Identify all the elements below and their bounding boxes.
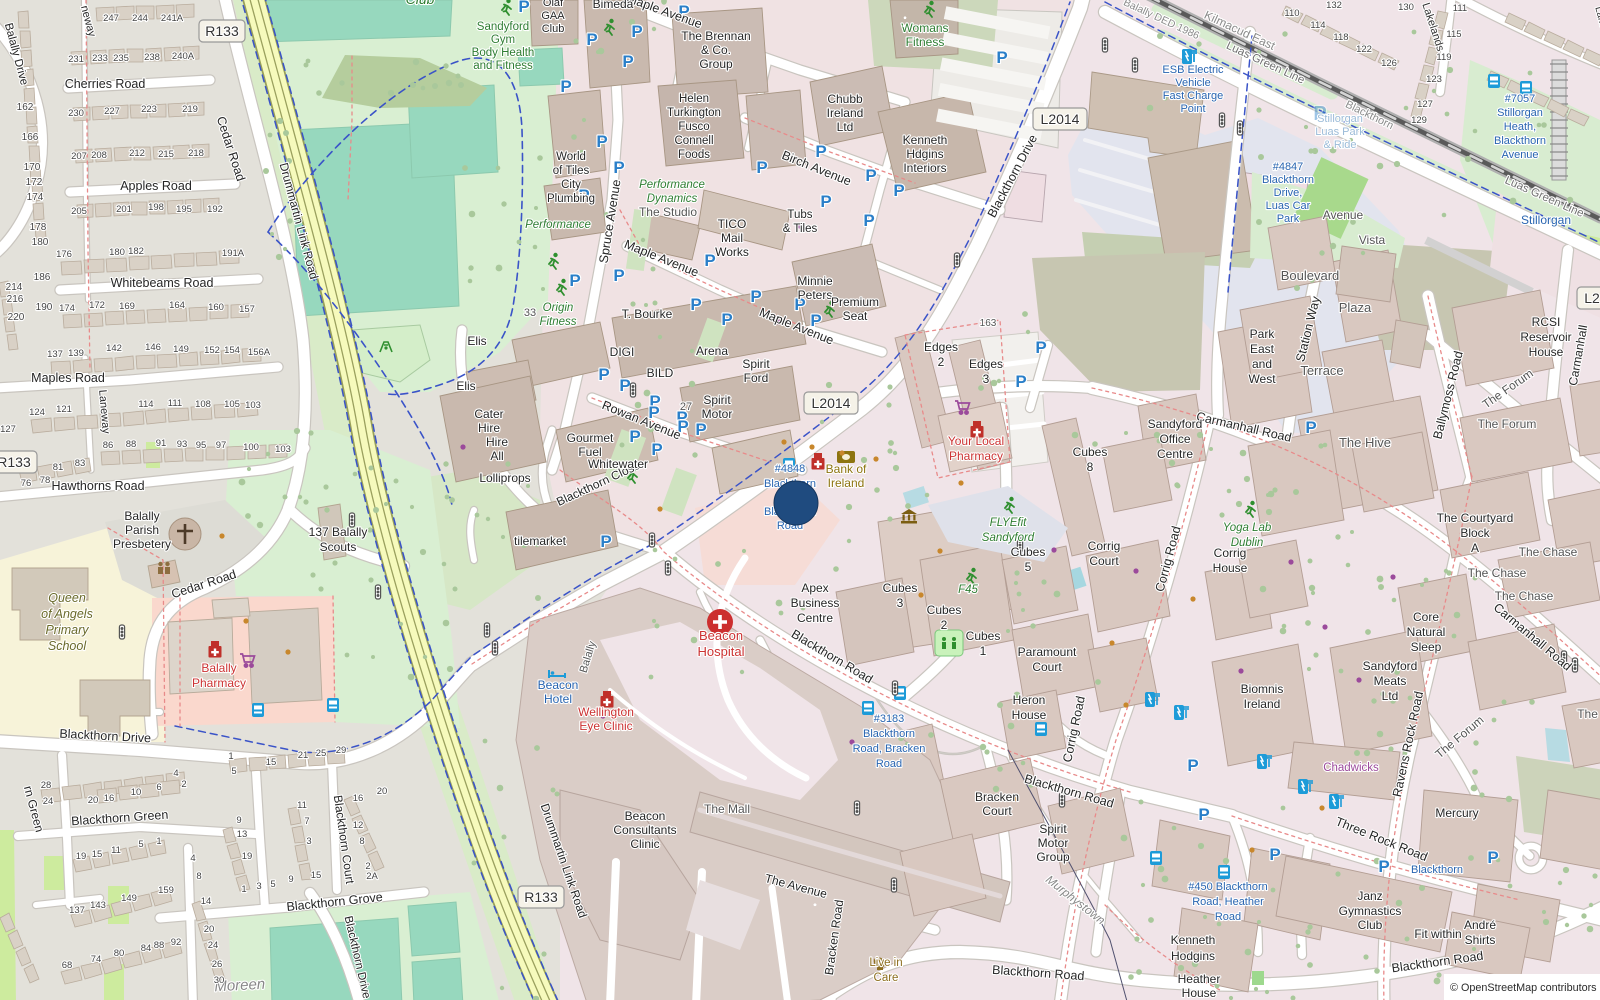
svg-text:Edges: Edges — [924, 340, 958, 354]
svg-text:208: 208 — [91, 150, 107, 161]
svg-text:GAA: GAA — [541, 10, 565, 22]
svg-text:Heath,: Heath, — [1504, 121, 1536, 133]
svg-text:8: 8 — [359, 836, 364, 847]
svg-text:19: 19 — [242, 851, 253, 862]
svg-text:233: 233 — [92, 53, 108, 64]
svg-text:DIGI: DIGI — [610, 345, 635, 359]
svg-text:5: 5 — [270, 879, 275, 890]
svg-text:21: 21 — [298, 750, 309, 761]
svg-text:Cubes: Cubes — [883, 581, 918, 595]
svg-text:166: 166 — [22, 132, 39, 143]
svg-text:P: P — [756, 158, 767, 177]
svg-text:P: P — [596, 132, 607, 151]
svg-text:Dublin: Dublin — [1231, 537, 1264, 549]
svg-text:162: 162 — [17, 102, 34, 113]
svg-text:Ireland: Ireland — [1244, 697, 1281, 711]
svg-text:Tubs: Tubs — [787, 209, 812, 221]
svg-text:11: 11 — [111, 845, 121, 856]
svg-text:5: 5 — [138, 839, 143, 850]
svg-text:223: 223 — [141, 104, 157, 115]
svg-text:Road: Road — [876, 758, 902, 770]
svg-text:BILD: BILD — [647, 366, 674, 380]
svg-text:137: 137 — [47, 349, 63, 360]
svg-text:115: 115 — [1446, 29, 1461, 40]
svg-text:Group: Group — [1036, 850, 1070, 864]
svg-text:Heron: Heron — [1013, 693, 1046, 707]
svg-text:174: 174 — [59, 303, 75, 314]
svg-text:2A: 2A — [366, 871, 378, 882]
svg-text:142: 142 — [106, 343, 122, 354]
svg-text:Kenneth: Kenneth — [1171, 933, 1216, 947]
svg-text:Edges: Edges — [969, 357, 1003, 371]
svg-text:114: 114 — [1310, 20, 1325, 31]
svg-text:Wellington: Wellington — [578, 705, 634, 719]
svg-text:12: 12 — [353, 820, 364, 831]
svg-text:House: House — [1182, 986, 1217, 1000]
svg-text:P: P — [631, 22, 642, 41]
svg-text:P: P — [695, 420, 706, 439]
svg-text:Primary: Primary — [45, 623, 89, 637]
svg-text:Hodgins: Hodgins — [1171, 949, 1215, 963]
svg-text:School: School — [48, 639, 87, 653]
svg-text:Live in: Live in — [869, 957, 902, 969]
svg-text:Reservoir: Reservoir — [1520, 330, 1571, 344]
svg-text:Cubes: Cubes — [927, 603, 962, 617]
svg-text:156A: 156A — [248, 347, 271, 358]
svg-text:6: 6 — [156, 782, 161, 793]
svg-text:P: P — [1269, 845, 1280, 864]
svg-text:Club: Club — [1358, 918, 1383, 932]
svg-text:8: 8 — [196, 871, 201, 882]
svg-text:P: P — [629, 427, 640, 446]
svg-text:24: 24 — [43, 796, 54, 807]
svg-text:P: P — [865, 166, 876, 185]
svg-text:& Tiles: & Tiles — [783, 223, 818, 235]
svg-text:160: 160 — [208, 302, 224, 313]
svg-text:P: P — [704, 251, 715, 270]
svg-text:9: 9 — [288, 874, 293, 885]
svg-text:1: 1 — [156, 836, 161, 847]
svg-text:House: House — [1213, 561, 1248, 575]
svg-text:123: 123 — [1426, 74, 1442, 85]
svg-text:Apex: Apex — [801, 581, 828, 595]
svg-text:132: 132 — [1326, 0, 1342, 11]
svg-text:27: 27 — [680, 401, 692, 413]
svg-text:130: 130 — [1398, 2, 1414, 13]
svg-text:Fast Charge: Fast Charge — [1163, 90, 1224, 102]
svg-text:All: All — [490, 449, 503, 463]
svg-text:Sandyford: Sandyford — [982, 532, 1035, 544]
svg-text:24: 24 — [208, 940, 219, 951]
svg-text:Cubes: Cubes — [1073, 445, 1108, 459]
svg-text:Performance: Performance — [639, 179, 705, 191]
svg-text:& Co.: & Co. — [701, 43, 731, 57]
svg-text:2: 2 — [938, 355, 945, 369]
svg-text:Janz: Janz — [1357, 889, 1382, 903]
svg-text:244: 244 — [132, 13, 148, 24]
svg-text:129: 129 — [1411, 115, 1427, 126]
svg-text:Hospital: Hospital — [698, 644, 745, 659]
svg-text:3: 3 — [983, 372, 990, 386]
svg-text:The Wa: The Wa — [1577, 707, 1600, 721]
svg-text:26: 26 — [212, 959, 223, 970]
svg-text:World: World — [556, 151, 586, 163]
svg-text:Blackthorn: Blackthorn — [1262, 174, 1314, 186]
svg-text:121: 121 — [56, 404, 72, 415]
svg-text:174: 174 — [27, 192, 44, 203]
svg-text:Care: Care — [874, 972, 899, 984]
svg-text:Lolliprops: Lolliprops — [479, 471, 530, 485]
svg-text:The Studio: The Studio — [639, 205, 697, 219]
svg-text:Boulevard: Boulevard — [1281, 268, 1340, 283]
svg-text:L2014: L2014 — [812, 395, 851, 411]
svg-text:146: 146 — [145, 342, 161, 353]
svg-text:R133: R133 — [205, 23, 239, 39]
svg-text:172: 172 — [26, 177, 43, 188]
svg-text:Bank of: Bank of — [826, 462, 867, 476]
svg-text:Stillorgan: Stillorgan — [1521, 213, 1571, 227]
svg-text:25: 25 — [316, 748, 327, 759]
svg-text:Foods: Foods — [678, 149, 710, 161]
svg-text:143: 143 — [90, 900, 106, 911]
svg-text:Womans: Womans — [901, 21, 948, 35]
svg-text:192: 192 — [207, 204, 223, 215]
svg-text:#4848: #4848 — [775, 463, 806, 475]
svg-text:111: 111 — [168, 398, 182, 409]
svg-text:74: 74 — [91, 954, 102, 965]
svg-text:15: 15 — [311, 870, 322, 881]
svg-text:137: 137 — [69, 905, 85, 916]
svg-text:Avenue: Avenue — [1501, 149, 1538, 161]
svg-text:1: 1 — [241, 884, 246, 895]
svg-text:19: 19 — [76, 851, 87, 862]
svg-text:127: 127 — [1417, 99, 1433, 110]
svg-text:Stillorgan: Stillorgan — [1497, 107, 1543, 119]
svg-text:139: 139 — [68, 348, 84, 359]
svg-text:3: 3 — [256, 881, 261, 892]
svg-text:Core: Core — [1413, 610, 1439, 624]
svg-text:#450 Blackthorn: #450 Blackthorn — [1188, 881, 1268, 893]
svg-text:Origin: Origin — [543, 302, 574, 314]
svg-text:4: 4 — [190, 853, 195, 864]
svg-text:Ireland: Ireland — [827, 106, 864, 120]
svg-text:T. Bourke: T. Bourke — [622, 307, 673, 321]
svg-text:Hire: Hire — [478, 421, 500, 435]
svg-text:Beacon: Beacon — [699, 628, 743, 643]
svg-text:#7057: #7057 — [1505, 93, 1536, 105]
svg-text:House: House — [1529, 345, 1564, 359]
svg-text:Road, Bracken: Road, Bracken — [853, 743, 926, 755]
svg-text:P: P — [1187, 756, 1198, 775]
svg-text:103: 103 — [275, 444, 291, 455]
svg-text:and Fitness: and Fitness — [473, 60, 533, 72]
svg-text:Consultants: Consultants — [613, 823, 676, 837]
svg-text:198: 198 — [148, 202, 164, 213]
svg-text:Road: Road — [1215, 911, 1241, 923]
svg-text:Performance: Performance — [525, 219, 591, 231]
svg-text:P: P — [1198, 805, 1209, 824]
svg-text:Bimeda: Bimeda — [593, 0, 634, 11]
svg-text:Plumbing: Plumbing — [547, 193, 595, 205]
svg-text:Presbetery: Presbetery — [113, 537, 171, 551]
svg-text:Maples Road: Maples Road — [31, 371, 105, 385]
svg-text:190: 190 — [36, 302, 53, 313]
svg-text:P: P — [1305, 418, 1316, 437]
svg-text:Fit within: Fit within — [1414, 927, 1461, 941]
svg-text:R133: R133 — [524, 889, 558, 905]
svg-text:Cater: Cater — [474, 407, 503, 421]
svg-text:127: 127 — [0, 424, 16, 435]
svg-text:Spirit: Spirit — [1039, 822, 1067, 836]
svg-text:P: P — [750, 287, 761, 306]
svg-text:28: 28 — [41, 780, 52, 791]
svg-text:Parish: Parish — [125, 523, 159, 537]
svg-text:Seat: Seat — [843, 309, 868, 323]
svg-text:Mail: Mail — [721, 231, 743, 245]
svg-text:© OpenStreetMap contributors: © OpenStreetMap contributors — [1450, 982, 1597, 994]
svg-text:118: 118 — [1333, 32, 1348, 43]
svg-text:110: 110 — [1284, 8, 1299, 19]
svg-text:Chubb: Chubb — [827, 92, 863, 106]
svg-text:City: City — [561, 179, 581, 191]
svg-text:Park: Park — [1250, 327, 1276, 341]
svg-text:P: P — [598, 365, 609, 384]
svg-text:Centre: Centre — [1157, 447, 1193, 461]
svg-text:P: P — [893, 181, 904, 200]
svg-text:16: 16 — [104, 793, 115, 804]
svg-text:P: P — [1035, 338, 1046, 357]
svg-text:15: 15 — [266, 757, 277, 768]
svg-text:Ford: Ford — [744, 371, 769, 385]
svg-text:Cherries Road: Cherries Road — [65, 77, 146, 91]
svg-text:7: 7 — [304, 816, 309, 827]
svg-text:Fitness: Fitness — [906, 35, 945, 49]
svg-text:8: 8 — [1087, 460, 1094, 474]
svg-text:Spirit: Spirit — [742, 357, 770, 371]
svg-text:P: P — [996, 48, 1007, 67]
svg-text:Clinic: Clinic — [630, 837, 659, 851]
svg-text:231: 231 — [68, 54, 84, 65]
svg-text:Motor: Motor — [702, 407, 733, 421]
svg-text:Blackthorn: Blackthorn — [863, 728, 915, 740]
svg-text:Sleep: Sleep — [1411, 640, 1442, 654]
svg-text:Chadwicks: Chadwicks — [1323, 762, 1379, 774]
svg-text:Apples Road: Apples Road — [120, 179, 192, 193]
svg-text:108: 108 — [195, 399, 211, 410]
svg-text:& Ride: & Ride — [1323, 139, 1356, 151]
svg-text:220: 220 — [8, 312, 25, 323]
svg-text:Biomnis: Biomnis — [1241, 682, 1284, 696]
svg-text:L2014: L2014 — [1041, 111, 1080, 127]
svg-text:216: 216 — [7, 294, 24, 305]
svg-text:Club: Club — [542, 23, 565, 35]
svg-text:205: 205 — [71, 206, 87, 217]
svg-text:78: 78 — [40, 475, 51, 486]
svg-text:Group: Group — [699, 57, 733, 71]
svg-text:Interiors: Interiors — [903, 161, 946, 175]
svg-text:ESB Electric: ESB Electric — [1162, 64, 1224, 76]
svg-text:Turkington: Turkington — [667, 107, 721, 119]
svg-text:16: 16 — [353, 793, 364, 804]
svg-text:Paramount: Paramount — [1018, 645, 1077, 659]
svg-text:Drive,: Drive, — [1274, 187, 1303, 199]
svg-text:149: 149 — [121, 893, 137, 904]
svg-text:Balally: Balally — [201, 661, 236, 675]
svg-text:Gourmet: Gourmet — [567, 431, 614, 445]
svg-text:Olaf: Olaf — [543, 0, 564, 9]
svg-text:Balally: Balally — [124, 509, 159, 523]
svg-text:TICO: TICO — [718, 217, 747, 231]
svg-text:Hdgins: Hdgins — [906, 147, 943, 161]
svg-text:9: 9 — [236, 815, 241, 826]
svg-text:152: 152 — [204, 345, 220, 356]
svg-text:86: 86 — [103, 440, 114, 451]
svg-text:97: 97 — [216, 440, 227, 451]
svg-text:Yoga Lab: Yoga Lab — [1223, 522, 1272, 534]
svg-text:The Chase: The Chase — [1495, 589, 1554, 603]
svg-text:163: 163 — [980, 318, 997, 329]
svg-text:154: 154 — [224, 345, 240, 356]
svg-text:95: 95 — [196, 440, 207, 451]
svg-text:Eye Clinic: Eye Clinic — [579, 719, 632, 733]
svg-text:124: 124 — [29, 407, 45, 418]
svg-text:Mercury: Mercury — [1435, 806, 1478, 820]
svg-text:Arena: Arena — [696, 344, 728, 358]
svg-text:P: P — [560, 77, 571, 96]
svg-text:13: 13 — [237, 829, 248, 840]
svg-text:P: P — [863, 211, 874, 230]
svg-text:241A: 241A — [161, 13, 184, 24]
svg-text:The Brennan: The Brennan — [681, 29, 750, 43]
svg-text:Elis: Elis — [456, 379, 475, 393]
svg-text:30: 30 — [214, 975, 225, 986]
svg-text:169: 169 — [119, 301, 135, 312]
svg-text:119: 119 — [1436, 52, 1451, 63]
svg-text:Court: Court — [1089, 554, 1119, 568]
svg-text:240A: 240A — [172, 51, 195, 62]
svg-text:Cubes: Cubes — [1011, 545, 1046, 559]
svg-text:91: 91 — [156, 438, 167, 449]
svg-text:5: 5 — [1025, 560, 1032, 574]
svg-text:2: 2 — [941, 618, 948, 632]
svg-text:81: 81 — [53, 462, 64, 473]
svg-text:159: 159 — [158, 885, 174, 896]
svg-text:Beacon: Beacon — [538, 678, 579, 692]
svg-text:Motor: Motor — [1038, 836, 1069, 850]
svg-text:11: 11 — [297, 800, 307, 811]
svg-text:The Forum: The Forum — [1478, 417, 1537, 431]
svg-text:195: 195 — [176, 204, 192, 215]
svg-text:Avenue: Avenue — [1323, 208, 1364, 222]
svg-text:33: 33 — [524, 307, 536, 319]
svg-text:157: 157 — [239, 304, 255, 315]
svg-text:20: 20 — [88, 795, 99, 806]
svg-text:191A: 191A — [222, 248, 245, 259]
svg-text:178: 178 — [30, 222, 47, 233]
svg-text:Spirit: Spirit — [703, 393, 731, 407]
svg-text:Bracken: Bracken — [975, 790, 1019, 804]
svg-text:RCSI: RCSI — [1532, 315, 1561, 329]
svg-text:218: 218 — [188, 148, 204, 159]
svg-text:4: 4 — [173, 768, 178, 779]
svg-text:212: 212 — [129, 148, 145, 159]
svg-text:Club: Club — [406, 0, 435, 7]
svg-text:88: 88 — [154, 940, 165, 951]
svg-text:Blackthorn: Blackthorn — [1494, 135, 1546, 147]
svg-text:111: 111 — [1453, 3, 1467, 14]
svg-text:Ireland: Ireland — [828, 476, 865, 490]
svg-text:P: P — [1487, 848, 1498, 867]
svg-text:Heather: Heather — [1178, 972, 1221, 986]
svg-text:Centre: Centre — [797, 611, 833, 625]
svg-text:Hotel: Hotel — [544, 692, 572, 706]
svg-text:Scouts: Scouts — [320, 540, 357, 554]
svg-text:#3183: #3183 — [874, 713, 905, 725]
svg-text:P: P — [815, 142, 826, 161]
svg-text:Body Health: Body Health — [472, 47, 535, 59]
svg-text:Sandyford: Sandyford — [1148, 417, 1203, 431]
svg-text:#4847: #4847 — [1273, 161, 1304, 173]
svg-text:P: P — [622, 52, 633, 71]
svg-text:114: 114 — [138, 399, 153, 410]
svg-text:Sandyford: Sandyford — [477, 21, 529, 33]
svg-text:180: 180 — [32, 237, 49, 248]
svg-text:88: 88 — [126, 439, 137, 450]
svg-text:Plaza: Plaza — [1339, 300, 1372, 315]
svg-text:29: 29 — [336, 745, 347, 756]
svg-text:and: and — [1252, 357, 1272, 371]
svg-text:Ltd: Ltd — [1382, 689, 1399, 703]
svg-text:P: P — [613, 266, 624, 285]
svg-text:186: 186 — [34, 272, 51, 283]
svg-text:84: 84 — [141, 943, 152, 954]
svg-text:Sandyford: Sandyford — [1363, 659, 1418, 673]
svg-text:P: P — [721, 310, 732, 329]
svg-text:F45: F45 — [958, 584, 978, 596]
svg-text:92: 92 — [171, 937, 182, 948]
svg-text:80: 80 — [114, 948, 125, 959]
svg-text:East: East — [1250, 342, 1275, 356]
svg-text:Cubes: Cubes — [966, 629, 1001, 643]
svg-text:P: P — [518, 0, 529, 16]
svg-text:West: West — [1248, 372, 1276, 386]
svg-text:Kenneth: Kenneth — [903, 133, 948, 147]
svg-text:Hawthorns Road: Hawthorns Road — [51, 479, 144, 493]
svg-text:Premium: Premium — [831, 295, 879, 309]
svg-text:100: 100 — [243, 442, 259, 453]
svg-text:The Mall: The Mall — [704, 802, 750, 816]
svg-text:247: 247 — [103, 13, 119, 24]
svg-text:The Chase: The Chase — [1519, 545, 1578, 559]
svg-text:93: 93 — [177, 439, 188, 450]
svg-text:Pharmacy: Pharmacy — [192, 676, 246, 690]
svg-text:14: 14 — [201, 896, 212, 907]
svg-text:103: 103 — [245, 400, 261, 411]
svg-text:Natural: Natural — [1407, 625, 1446, 639]
svg-text:1: 1 — [228, 751, 233, 762]
svg-text:Gym: Gym — [491, 34, 515, 46]
svg-text:164: 164 — [169, 300, 185, 311]
svg-text:Block: Block — [1460, 526, 1490, 540]
svg-text:Luas Car: Luas Car — [1266, 200, 1311, 212]
svg-text:5: 5 — [231, 766, 236, 777]
svg-text:Terrace: Terrace — [1300, 363, 1343, 378]
svg-text:227: 227 — [104, 106, 120, 117]
svg-text:230: 230 — [68, 108, 84, 119]
svg-text:of Tiles: of Tiles — [553, 165, 590, 177]
svg-text:Court: Court — [982, 804, 1012, 818]
svg-text:P: P — [613, 158, 624, 177]
